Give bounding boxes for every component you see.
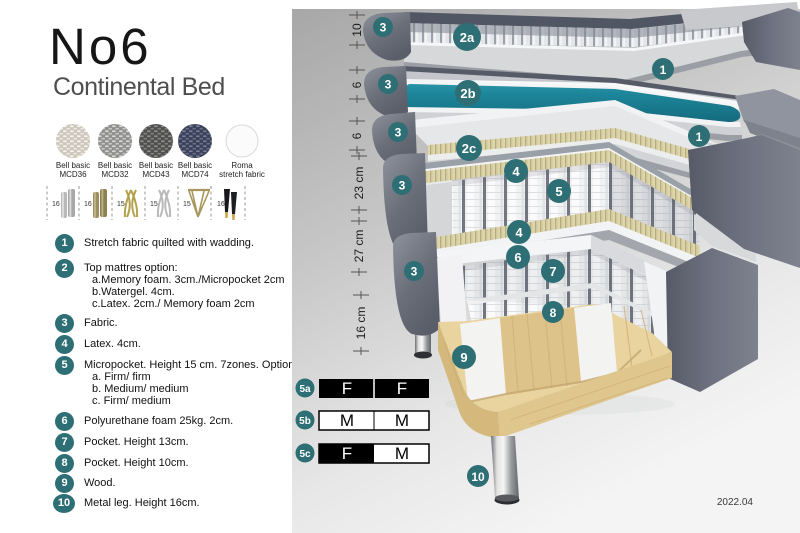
svg-text:10: 10: [350, 23, 364, 37]
svg-text:9: 9: [460, 350, 467, 365]
svg-text:4: 4: [515, 225, 523, 240]
svg-text:1: 1: [660, 63, 667, 77]
svg-text:2a: 2a: [460, 30, 475, 45]
svg-text:F: F: [342, 379, 352, 398]
svg-text:4: 4: [512, 164, 520, 179]
svg-text:3: 3: [380, 21, 387, 35]
svg-text:5b: 5b: [299, 416, 311, 427]
svg-text:10: 10: [471, 470, 485, 484]
svg-text:7: 7: [549, 264, 556, 279]
svg-text:3: 3: [395, 126, 402, 140]
svg-text:F: F: [397, 379, 407, 398]
svg-text:2b: 2b: [460, 86, 475, 101]
svg-text:8: 8: [550, 306, 557, 320]
svg-text:27 cm: 27 cm: [352, 230, 366, 263]
svg-text:3: 3: [411, 265, 418, 279]
svg-text:3: 3: [399, 179, 406, 193]
svg-text:5: 5: [555, 184, 562, 199]
svg-text:6: 6: [514, 250, 521, 265]
svg-text:16 cm: 16 cm: [354, 307, 368, 340]
svg-text:1: 1: [696, 130, 703, 144]
svg-text:6: 6: [350, 132, 364, 139]
svg-text:F: F: [342, 444, 352, 463]
svg-text:3: 3: [385, 78, 392, 92]
svg-text:5a: 5a: [299, 384, 311, 395]
svg-text:2022.04: 2022.04: [717, 497, 754, 508]
svg-text:M: M: [340, 411, 354, 430]
svg-text:23 cm: 23 cm: [352, 167, 366, 200]
svg-text:5c: 5c: [299, 449, 311, 460]
svg-text:M: M: [395, 411, 409, 430]
svg-text:M: M: [395, 444, 409, 463]
svg-text:6: 6: [350, 81, 364, 88]
svg-text:2c: 2c: [462, 141, 476, 156]
